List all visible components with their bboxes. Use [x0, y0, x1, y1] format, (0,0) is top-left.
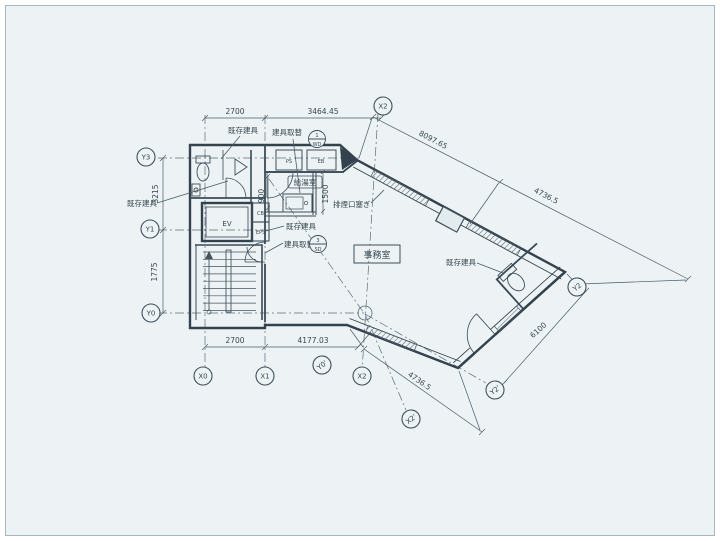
toilet-tank — [196, 156, 210, 163]
pantry-label: 給湯室 — [294, 177, 317, 187]
label-fixture-replace-top: 建具取替 — [272, 127, 302, 137]
dim-pantry-width: 900 — [257, 189, 266, 204]
scanned-floor-plan-page: EV CB EPS PS EB — [0, 0, 720, 541]
grid-marker-x0: X0 — [198, 373, 207, 381]
label-existing-fixture-top: 既存建具 — [228, 125, 258, 135]
door-mark-wd-type: WD — [313, 142, 322, 148]
grid-marker-x2-bottom: X2 — [357, 373, 366, 381]
dim-bottom-2: 4177.03 — [297, 336, 328, 345]
wc-door-arc — [226, 178, 246, 198]
wc-fixtures — [192, 156, 247, 198]
dim-top-1: 2700 — [225, 107, 244, 116]
dim-top-2: 3464.45 — [307, 107, 338, 116]
floor-plan-drawing: EV CB EPS PS EB — [0, 0, 720, 541]
door-mark-wd-number: 1 — [315, 133, 318, 139]
label-existing-fixture-left: 既存建具 — [127, 198, 157, 208]
door-mark-sd-number: 3 — [316, 238, 319, 244]
dim-left-2: 1775 — [150, 262, 159, 281]
urinal — [235, 159, 247, 175]
dim-diag-lower: 4736.5 — [406, 370, 433, 393]
grid-marker-x2-top: X2 — [378, 103, 387, 111]
closet-upper-label: CB — [257, 211, 264, 217]
door-mark-sd-type: SD — [314, 247, 321, 253]
label-existing-fixture-right: 既存建具 — [446, 257, 476, 267]
toilet-bowl — [197, 163, 209, 181]
grid-marker-x1: X1 — [260, 373, 269, 381]
label-existing-fixture-mid: 既存建具 — [286, 221, 316, 231]
dim-pantry-depth: 1500 — [321, 184, 330, 203]
staircase — [203, 250, 256, 314]
label-smoke-vent: 排煙口塞ぎ — [333, 199, 371, 209]
dim-right-edge: 6100 — [528, 320, 548, 340]
grid-marker-y1: Y1 — [145, 226, 155, 234]
grid-marker-y0: Y0 — [146, 310, 156, 318]
shaft-top-label: PS — [286, 159, 292, 165]
office-label: 事務室 — [363, 249, 390, 261]
wall-pilaster — [436, 207, 465, 233]
shaft-right-label: EB — [318, 159, 325, 165]
dim-bottom-1: 2700 — [225, 336, 244, 345]
grid-marker-y3: Y3 — [141, 154, 151, 162]
dim-diag-upper-2: 4736.5 — [532, 186, 560, 206]
elevator-label: EV — [222, 220, 231, 228]
closet-lower-label: EPS — [256, 230, 265, 236]
